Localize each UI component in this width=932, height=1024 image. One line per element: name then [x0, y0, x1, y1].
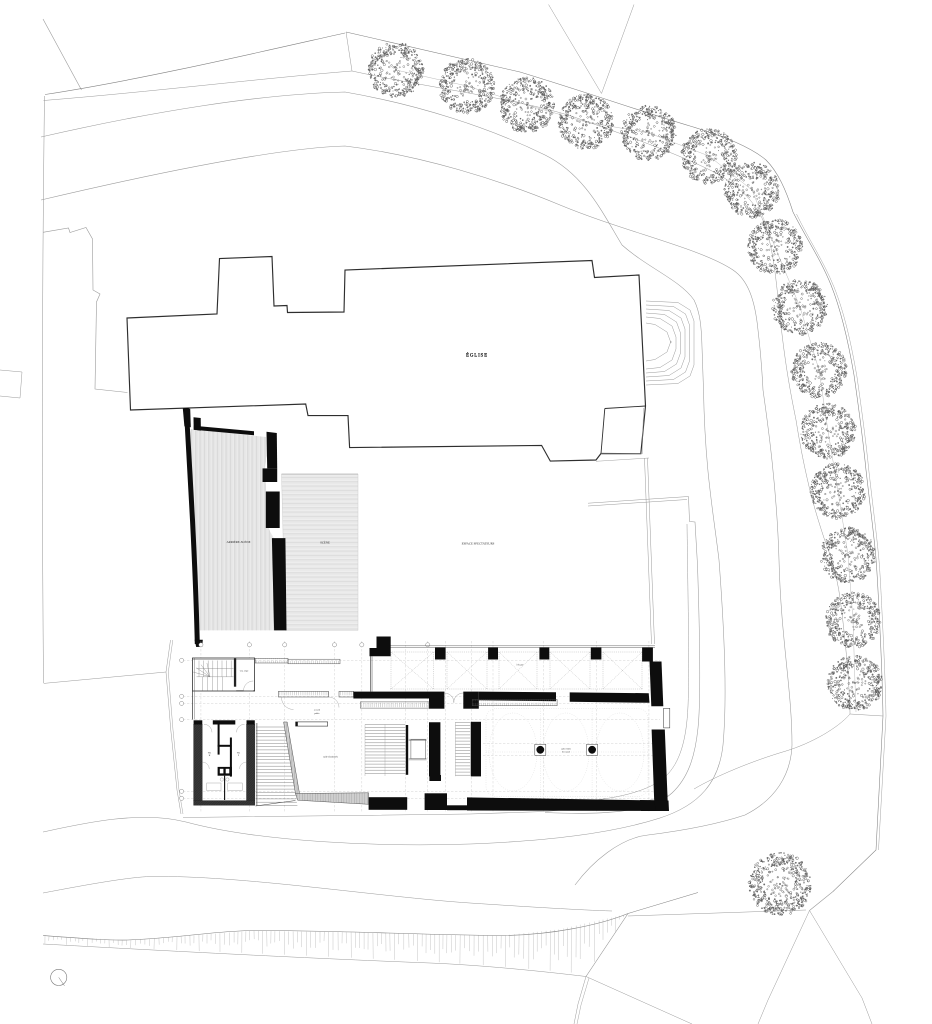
svg-text:public: public: [314, 712, 319, 715]
svg-text:ARRIÈRE-SCÈNE: ARRIÈRE-SCÈNE: [226, 540, 250, 544]
svg-text:accueil: accueil: [314, 709, 321, 712]
svg-text:ESPACE SPECTATEURS: ESPACE SPECTATEURS: [462, 542, 495, 546]
svg-text:salle d'activités: salle d'activités: [323, 755, 338, 758]
svg-text:vest. régie: vest. régie: [240, 670, 249, 673]
svg-text:l'écurie: l'écurie: [517, 663, 524, 666]
svg-text:salle voûtée: salle voûtée: [561, 747, 571, 750]
svg-text:SCÈNE: SCÈNE: [320, 541, 330, 545]
svg-text:ÉGLISE: ÉGLISE: [466, 352, 488, 359]
svg-text:de travail: de travail: [562, 751, 570, 754]
